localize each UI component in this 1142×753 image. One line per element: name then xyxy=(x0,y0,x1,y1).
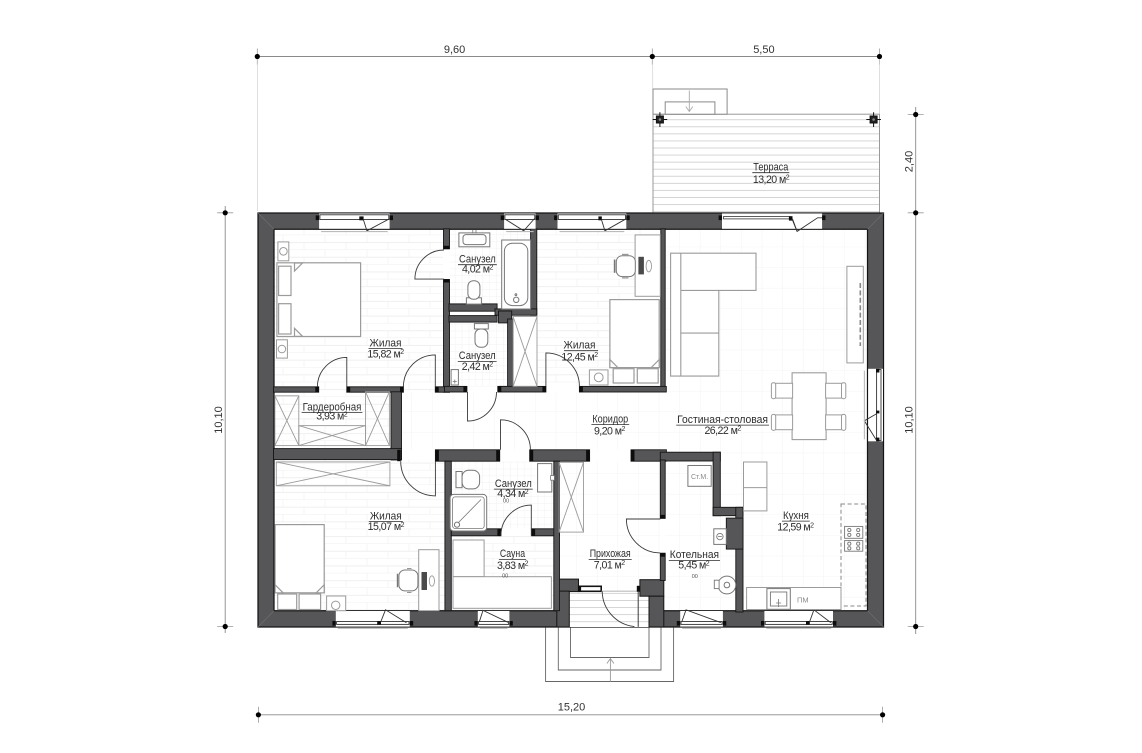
svg-text:5,50: 5,50 xyxy=(753,44,774,56)
svg-text:Прихожая: Прихожая xyxy=(590,548,631,560)
svg-text:9,60: 9,60 xyxy=(444,44,465,56)
svg-text:2,42 м2: 2,42 м2 xyxy=(462,361,494,373)
svg-text:15,07 м2: 15,07 м2 xyxy=(368,521,405,533)
svg-text:Терраса: Терраса xyxy=(753,162,788,174)
svg-text:10,10: 10,10 xyxy=(213,406,225,434)
svg-text:Жилая: Жилая xyxy=(564,340,596,352)
svg-text:4,02 м2: 4,02 м2 xyxy=(462,264,494,276)
svg-text:15,82 м2: 15,82 м2 xyxy=(367,348,404,360)
svg-text:Коридор: Коридор xyxy=(592,413,628,425)
svg-text:10,10: 10,10 xyxy=(903,406,915,434)
svg-text:ПМ: ПМ xyxy=(797,596,809,605)
svg-text:13,20 м2: 13,20 м2 xyxy=(753,174,790,186)
svg-text:12,45 м2: 12,45 м2 xyxy=(561,351,598,363)
svg-text:00: 00 xyxy=(503,499,509,505)
svg-text:3,83 м2: 3,83 м2 xyxy=(497,560,529,572)
svg-text:3,93 м2: 3,93 м2 xyxy=(316,411,348,423)
svg-text:Кухня: Кухня xyxy=(783,510,809,522)
svg-text:Ст.М.: Ст.М. xyxy=(691,474,708,481)
svg-text:00: 00 xyxy=(502,574,508,580)
svg-text:9,20 м2: 9,20 м2 xyxy=(594,425,626,437)
svg-text:Сауна: Сауна xyxy=(500,548,525,560)
svg-text:26,22 м2: 26,22 м2 xyxy=(704,425,741,437)
svg-text:15,20: 15,20 xyxy=(558,701,586,713)
svg-text:00: 00 xyxy=(692,574,698,580)
svg-text:5,45 м2: 5,45 м2 xyxy=(678,560,710,572)
svg-text:2,40: 2,40 xyxy=(903,151,915,172)
svg-text:7,01 м2: 7,01 м2 xyxy=(594,559,626,571)
svg-text:12,59 м2: 12,59 м2 xyxy=(777,522,814,534)
